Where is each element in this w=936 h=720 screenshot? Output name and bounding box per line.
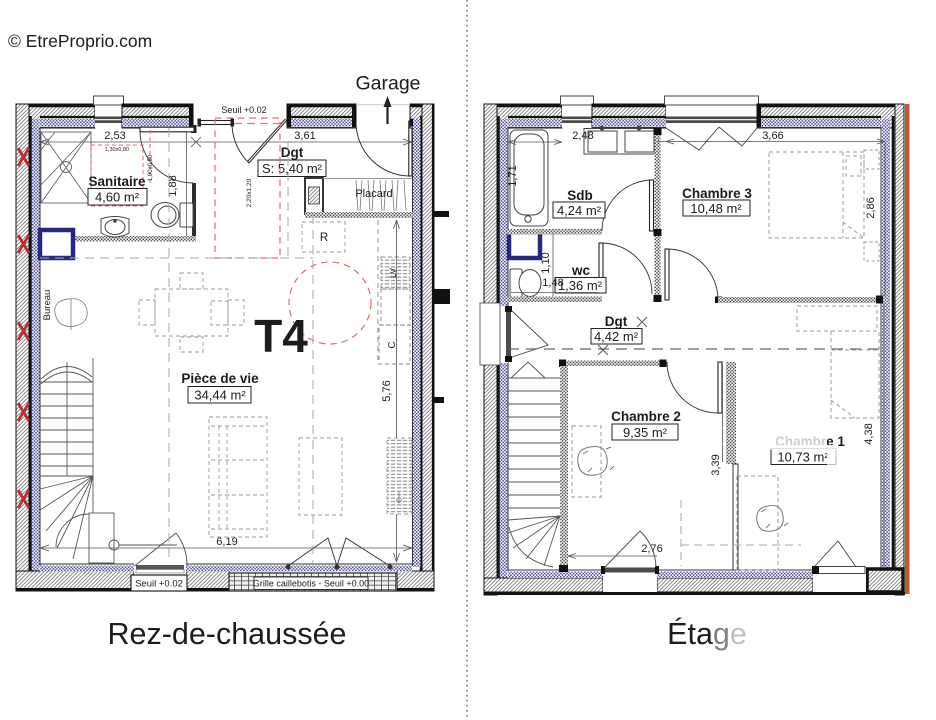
svg-text:T4: T4 — [254, 310, 308, 362]
svg-text:4,60 m²: 4,60 m² — [95, 190, 140, 205]
svg-text:R: R — [320, 232, 328, 244]
svg-text:1,10: 1,10 — [540, 252, 552, 273]
svg-text:Seuil +0.02: Seuil +0.02 — [135, 579, 183, 590]
svg-text:4,24 m²: 4,24 m² — [557, 203, 602, 218]
svg-text:4,42 m²: 4,42 m² — [594, 329, 639, 344]
svg-text:34,44 m²: 34,44 m² — [194, 388, 246, 403]
svg-text:6,19: 6,19 — [216, 536, 237, 548]
svg-text:3,66: 3,66 — [762, 130, 783, 142]
svg-text:2,20x1,20: 2,20x1,20 — [246, 178, 253, 207]
svg-text:Grille caillebotis - Seuil +0.: Grille caillebotis - Seuil +0.00 — [253, 579, 369, 589]
svg-text:2,48: 2,48 — [572, 130, 593, 142]
svg-text:1,36 m²: 1,36 m² — [558, 278, 603, 293]
svg-text:5,76: 5,76 — [381, 380, 393, 401]
svg-text:Dgt: Dgt — [281, 145, 304, 160]
svg-text:Placard: Placard — [355, 188, 392, 200]
svg-text:9,35 m²: 9,35 m² — [623, 425, 668, 440]
svg-text:Dgt: Dgt — [605, 314, 628, 329]
svg-text:Sdb: Sdb — [567, 188, 593, 203]
svg-text:© EtreProprio.com: © EtreProprio.com — [8, 31, 152, 51]
svg-text:10,48 m²: 10,48 m² — [690, 201, 742, 216]
svg-text:2,86: 2,86 — [865, 197, 877, 218]
svg-text:10,73 m²: 10,73 m² — [777, 450, 829, 465]
svg-text:Rez-de-chaussée: Rez-de-chaussée — [107, 617, 346, 651]
svg-text:3,39: 3,39 — [710, 454, 722, 475]
svg-text:Garage: Garage — [355, 73, 420, 95]
svg-text:Pièce de vie: Pièce de vie — [181, 371, 259, 386]
svg-text:wc: wc — [571, 263, 591, 278]
svg-text:4,38: 4,38 — [863, 423, 875, 444]
svg-text:Sanitaire: Sanitaire — [88, 174, 146, 189]
svg-text:1,90x0,60: 1,90x0,60 — [148, 154, 154, 181]
svg-text:2,76: 2,76 — [641, 543, 662, 555]
svg-text:2,53: 2,53 — [104, 130, 125, 142]
svg-text:Bureau: Bureau — [42, 290, 53, 321]
svg-text:Seuil +0.02: Seuil +0.02 — [221, 105, 266, 115]
svg-text:3,61: 3,61 — [294, 130, 315, 142]
svg-text:1,71: 1,71 — [507, 165, 519, 186]
svg-text:1,30x0,80: 1,30x0,80 — [105, 147, 129, 153]
svg-text:Chambre 2: Chambre 2 — [611, 409, 681, 424]
svg-text:Chambre 3: Chambre 3 — [682, 186, 752, 201]
svg-text:S: 5,40 m²: S: 5,40 m² — [262, 161, 323, 176]
